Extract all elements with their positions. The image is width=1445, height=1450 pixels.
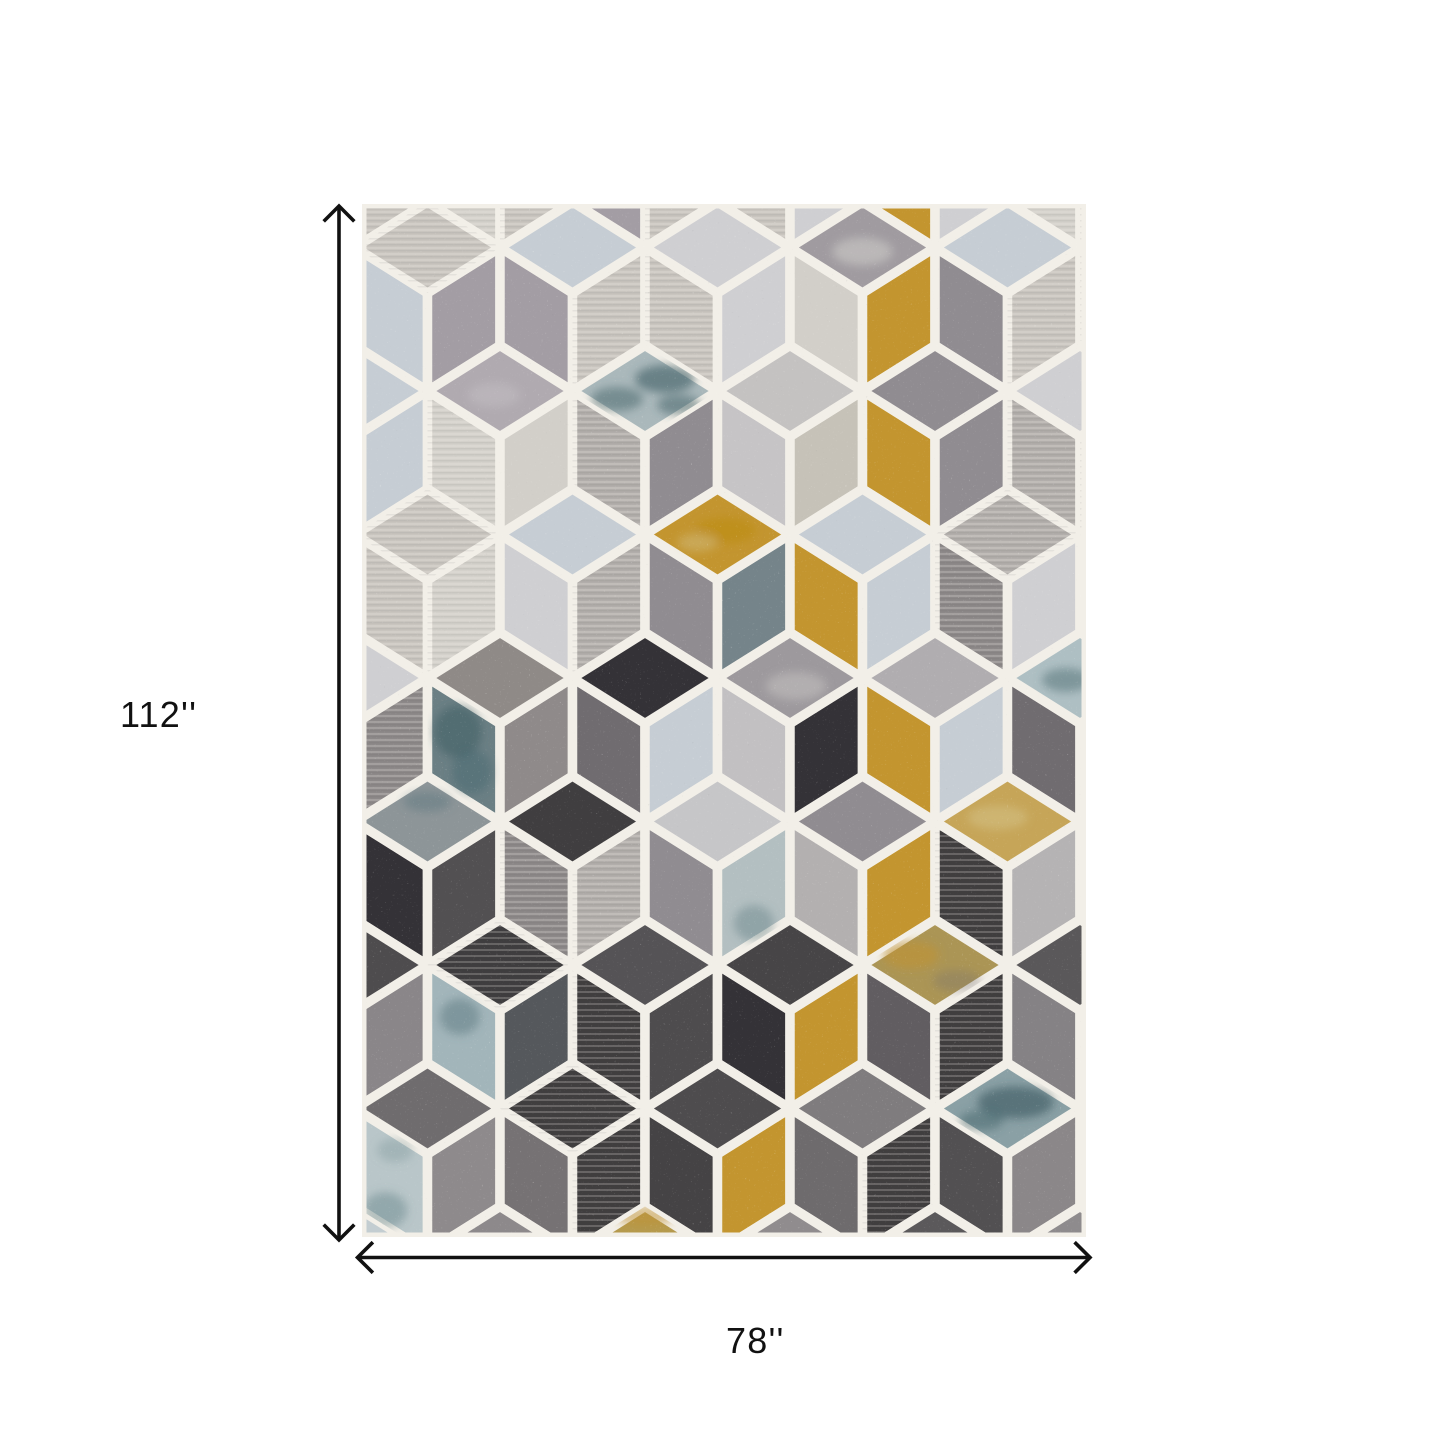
svg-text:112'': 112'' (120, 694, 197, 735)
svg-text:78'': 78'' (726, 1320, 785, 1361)
